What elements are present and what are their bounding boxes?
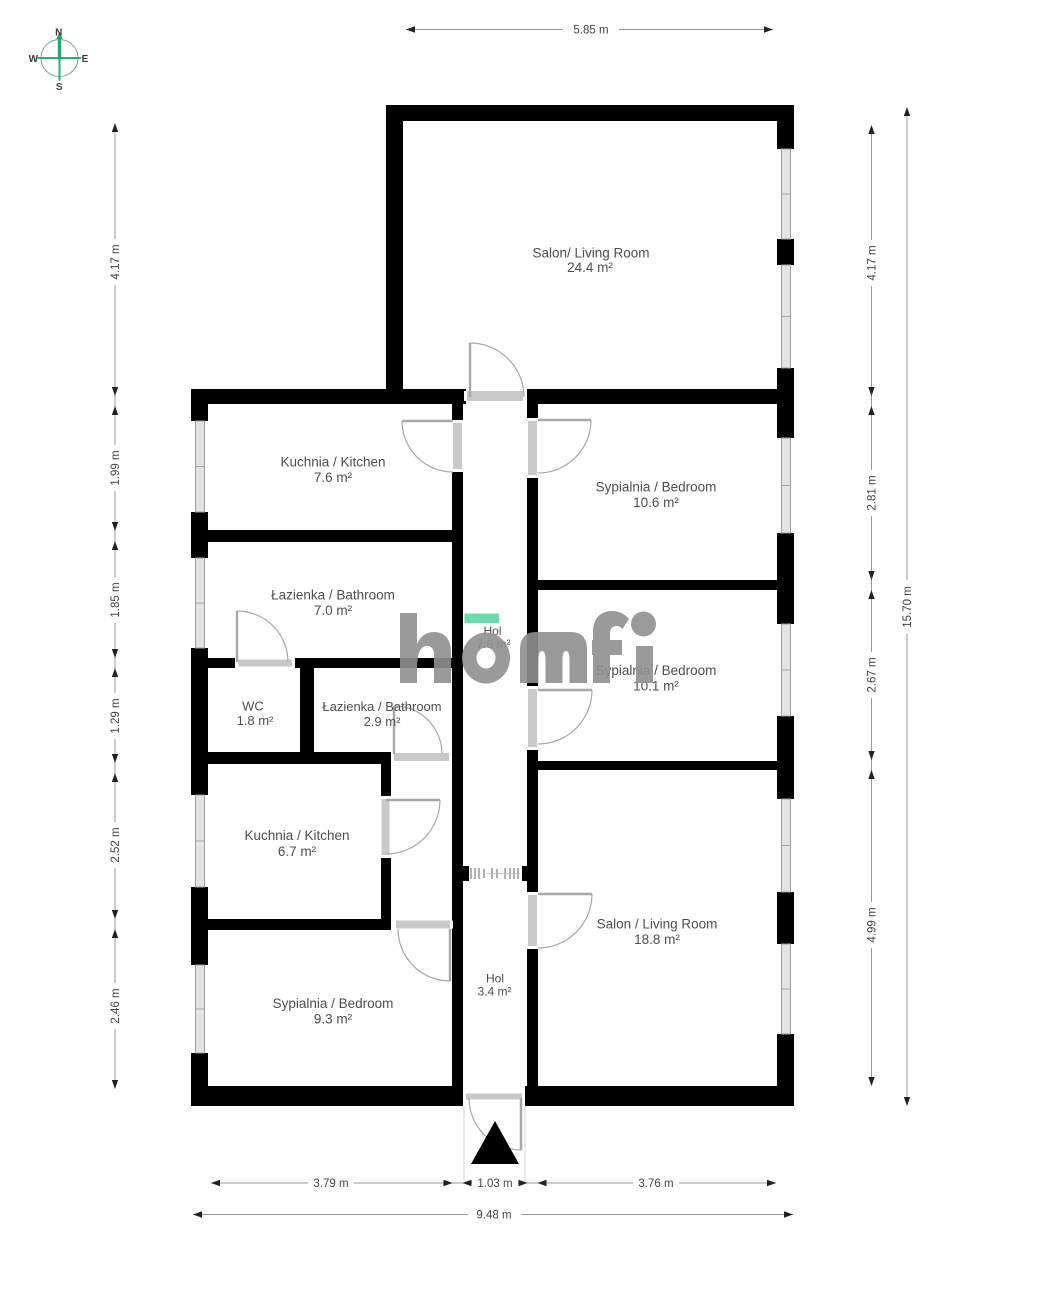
svg-text:Hol: Hol — [486, 972, 504, 986]
svg-text:4.17 m: 4.17 m — [867, 245, 879, 280]
svg-text:1.29 m: 1.29 m — [110, 698, 122, 733]
svg-text:E: E — [82, 54, 89, 65]
svg-text:24.4 m²: 24.4 m² — [567, 260, 613, 275]
svg-text:2.81 m: 2.81 m — [867, 475, 879, 510]
svg-text:2.9 m²: 2.9 m² — [364, 714, 402, 729]
svg-text:Sypialnia / Bedroom: Sypialnia / Bedroom — [596, 480, 717, 495]
svg-text:15.70 m: 15.70 m — [902, 586, 914, 628]
svg-text:18.8 m²: 18.8 m² — [634, 932, 680, 947]
svg-text:10.6 m²: 10.6 m² — [633, 495, 679, 510]
svg-text:1.03 m: 1.03 m — [477, 1178, 512, 1190]
svg-text:9.48 m: 9.48 m — [476, 1210, 511, 1222]
svg-text:9.3 m²: 9.3 m² — [314, 1012, 353, 1027]
svg-text:7.6 m²: 7.6 m² — [314, 470, 353, 485]
svg-text:2.52 m: 2.52 m — [110, 827, 122, 862]
svg-text:Kuchnia / Kitchen: Kuchnia / Kitchen — [280, 455, 385, 470]
svg-text:4.17 m: 4.17 m — [110, 244, 122, 279]
svg-text:5.85 m: 5.85 m — [573, 25, 608, 37]
svg-text:Sypialnia / Bedroom: Sypialnia / Bedroom — [273, 996, 394, 1011]
svg-text:N: N — [55, 28, 62, 39]
svg-text:1.99 m: 1.99 m — [110, 450, 122, 485]
svg-text:3.4 m²: 3.4 m² — [477, 985, 511, 999]
svg-text:4.99 m: 4.99 m — [867, 907, 879, 942]
svg-text:Kuchnia / Kitchen: Kuchnia / Kitchen — [244, 828, 349, 843]
svg-text:Łazienka / Bathroom: Łazienka / Bathroom — [322, 699, 441, 714]
svg-text:1.8 m²: 1.8 m² — [237, 713, 275, 728]
svg-text:Salon / Living Room: Salon / Living Room — [597, 917, 718, 932]
svg-text:1.85 m: 1.85 m — [110, 582, 122, 617]
svg-text:Sypialnia / Bedroom: Sypialnia / Bedroom — [596, 663, 717, 678]
svg-text:3.79 m: 3.79 m — [313, 1178, 348, 1190]
svg-text:2.46 m: 2.46 m — [110, 988, 122, 1023]
svg-text:6.7 m²: 6.7 m² — [278, 844, 317, 859]
svg-text:3.76 m: 3.76 m — [638, 1178, 673, 1190]
svg-text:7.0 m²: 7.0 m² — [314, 603, 353, 618]
svg-text:Łazienka / Bathroom: Łazienka / Bathroom — [271, 588, 395, 603]
svg-text:WC: WC — [242, 699, 264, 714]
svg-text:Salon/ Living Room: Salon/ Living Room — [532, 246, 649, 261]
svg-text:2.67 m: 2.67 m — [867, 657, 879, 692]
svg-text:S: S — [56, 82, 63, 93]
svg-text:W: W — [29, 54, 39, 65]
